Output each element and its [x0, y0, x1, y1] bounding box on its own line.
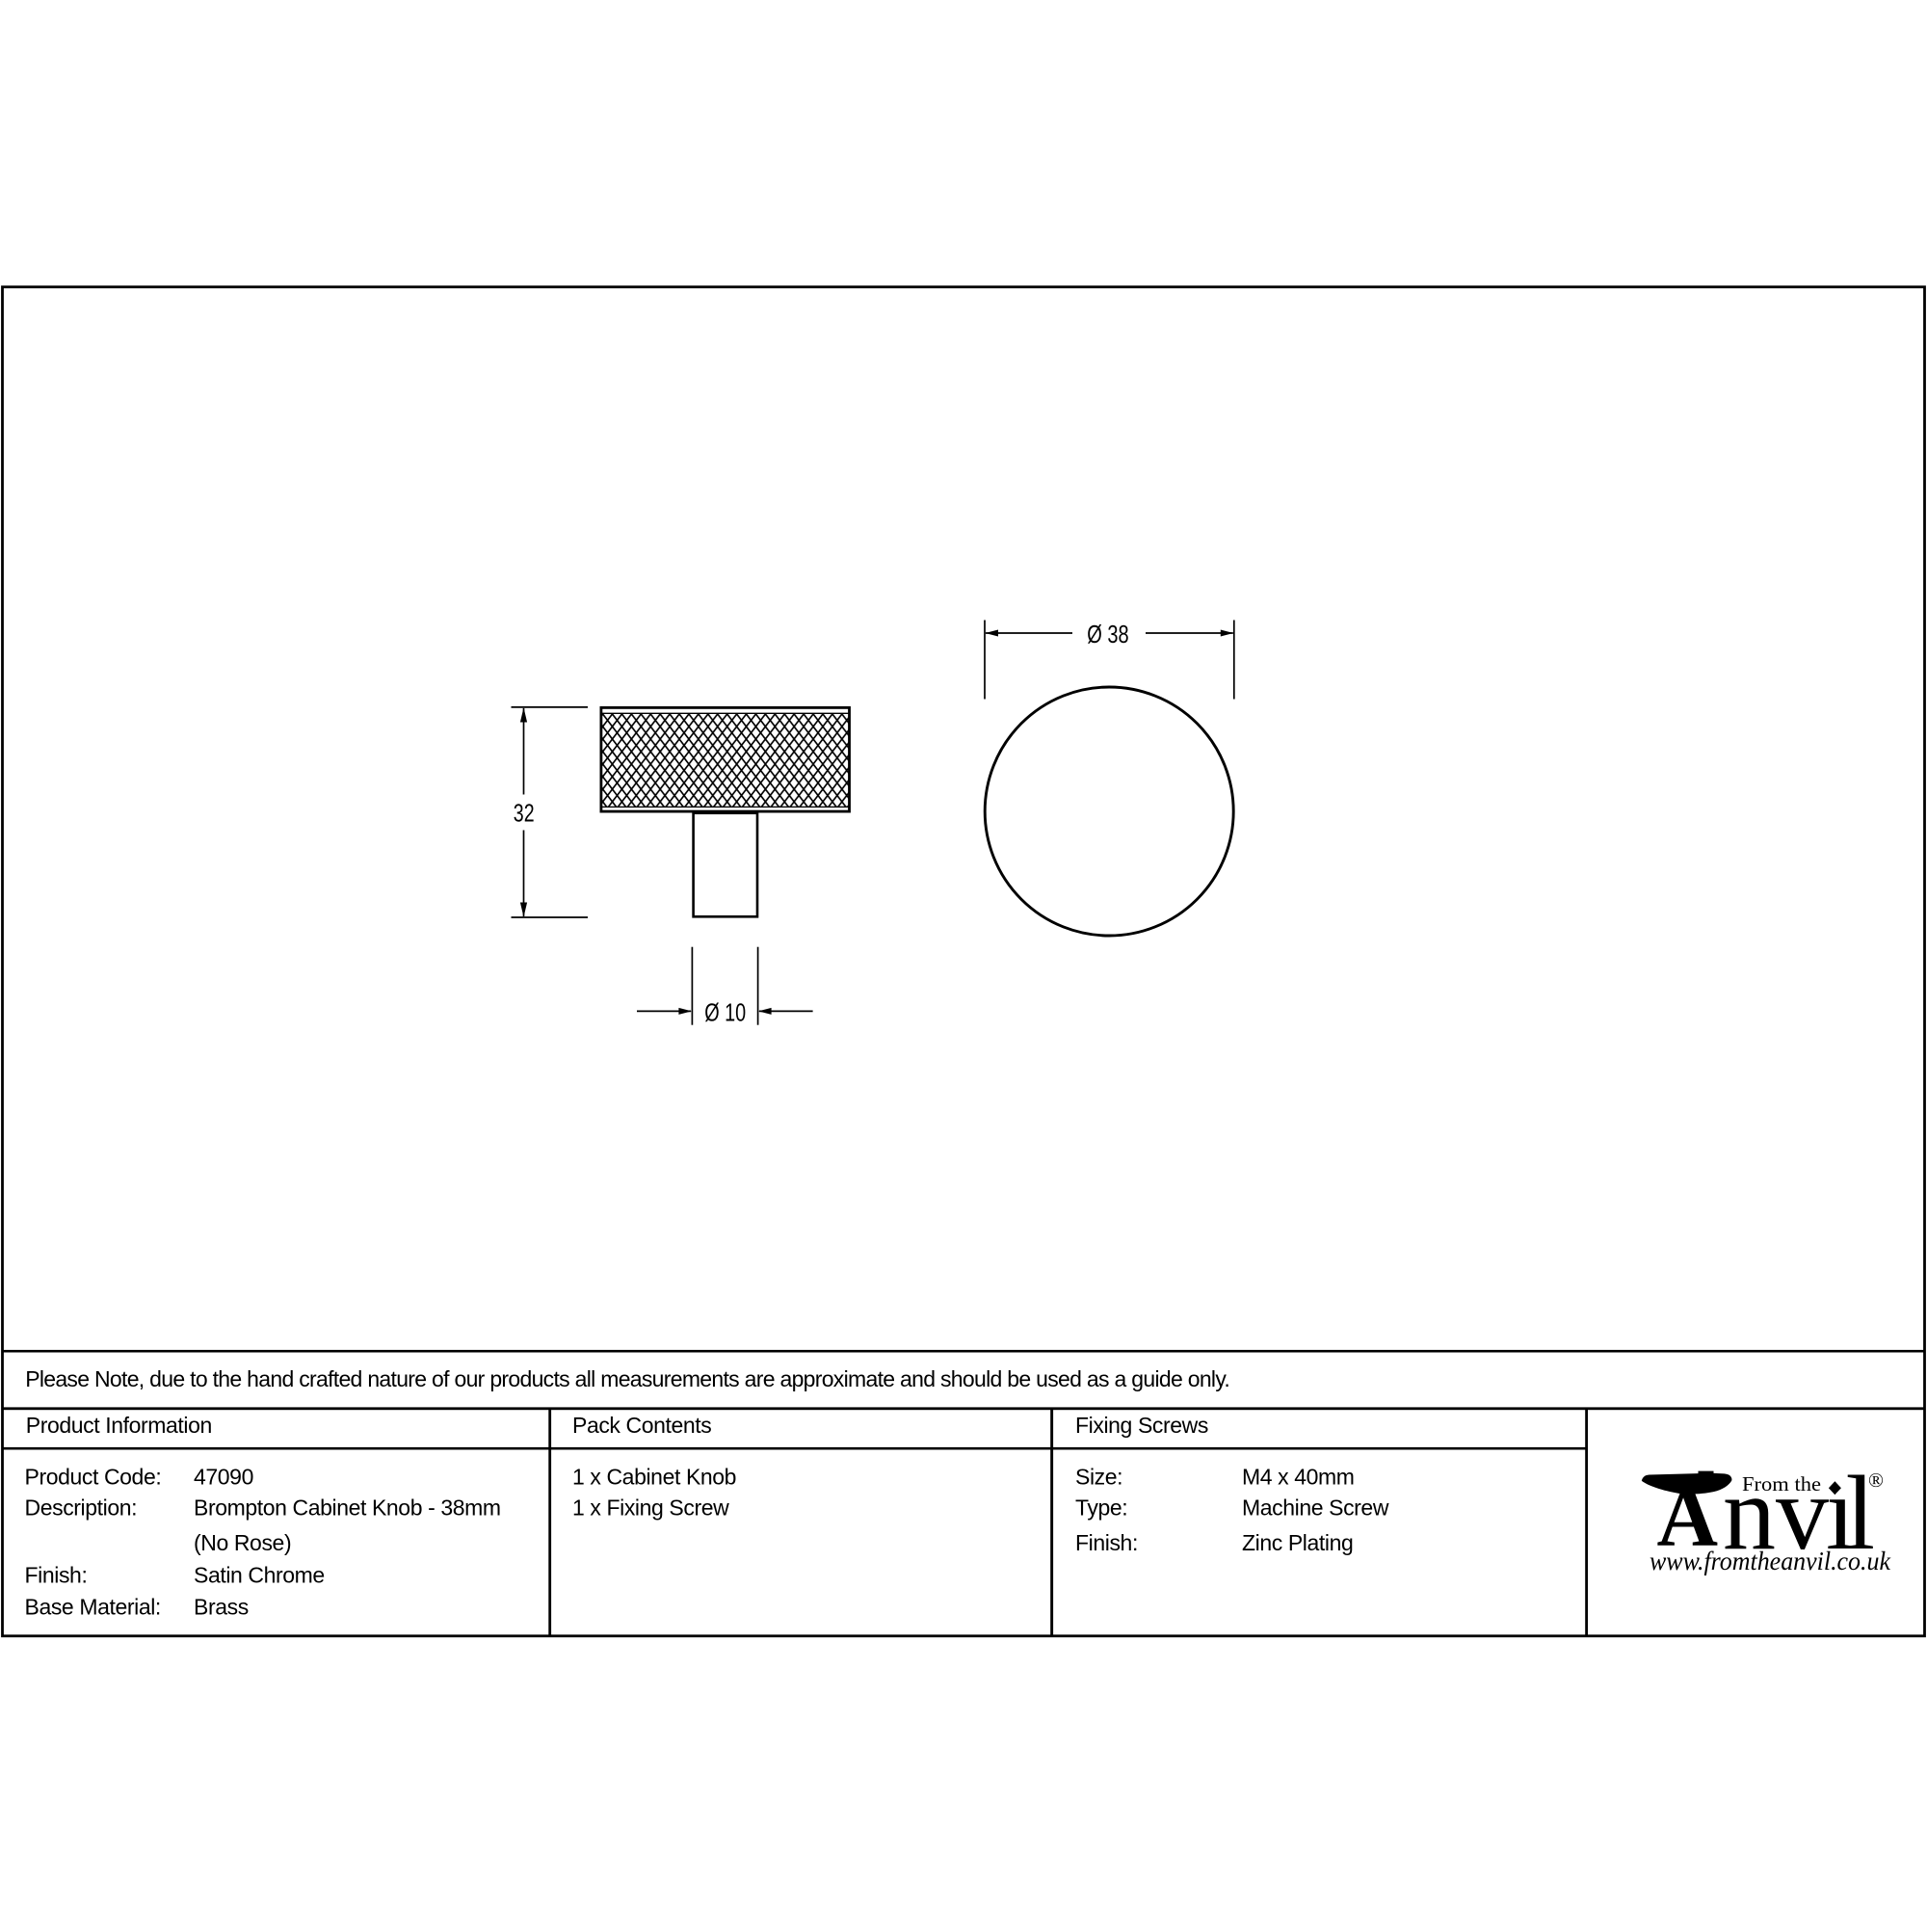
- svg-text:®: ®: [1868, 1469, 1884, 1492]
- svg-text:Finish:: Finish:: [25, 1562, 88, 1587]
- svg-text:(No Rose): (No Rose): [194, 1530, 291, 1555]
- svg-text:Base Material:: Base Material:: [25, 1594, 161, 1619]
- svg-text:www.fromtheanvil.co.uk: www.fromtheanvil.co.uk: [1650, 1547, 1891, 1575]
- svg-text:1 x Cabinet Knob: 1 x Cabinet Knob: [572, 1464, 736, 1489]
- svg-text:M4 x 40mm: M4 x 40mm: [1242, 1464, 1355, 1489]
- svg-text:Product Information: Product Information: [26, 1413, 212, 1438]
- svg-text:Description:: Description:: [25, 1495, 138, 1521]
- svg-text:Brompton Cabinet Knob - 38mm: Brompton Cabinet Knob - 38mm: [194, 1495, 501, 1521]
- svg-text:Machine Screw: Machine Screw: [1242, 1495, 1389, 1521]
- svg-text:Size:: Size:: [1075, 1464, 1122, 1489]
- svg-text:1 x Fixing Screw: 1 x Fixing Screw: [572, 1495, 729, 1521]
- svg-text:Brass: Brass: [194, 1594, 249, 1619]
- svg-text:Fixing Screws: Fixing Screws: [1075, 1413, 1208, 1438]
- svg-text:Pack Contents: Pack Contents: [572, 1413, 711, 1438]
- svg-text:Zinc Plating: Zinc Plating: [1242, 1530, 1353, 1555]
- svg-text:32: 32: [514, 800, 535, 827]
- svg-text:Ø 38: Ø 38: [1087, 622, 1128, 648]
- svg-text:From the: From the: [1742, 1472, 1821, 1495]
- svg-text:Finish:: Finish:: [1075, 1530, 1138, 1555]
- svg-text:Ø 10: Ø 10: [704, 1000, 746, 1027]
- svg-text:Please Note, due to the hand c: Please Note, due to the hand crafted nat…: [25, 1366, 1229, 1391]
- svg-text:Product Code:: Product Code:: [25, 1464, 162, 1489]
- svg-text:47090: 47090: [194, 1464, 253, 1489]
- svg-text:Satin Chrome: Satin Chrome: [194, 1562, 325, 1587]
- svg-text:Type:: Type:: [1075, 1495, 1127, 1521]
